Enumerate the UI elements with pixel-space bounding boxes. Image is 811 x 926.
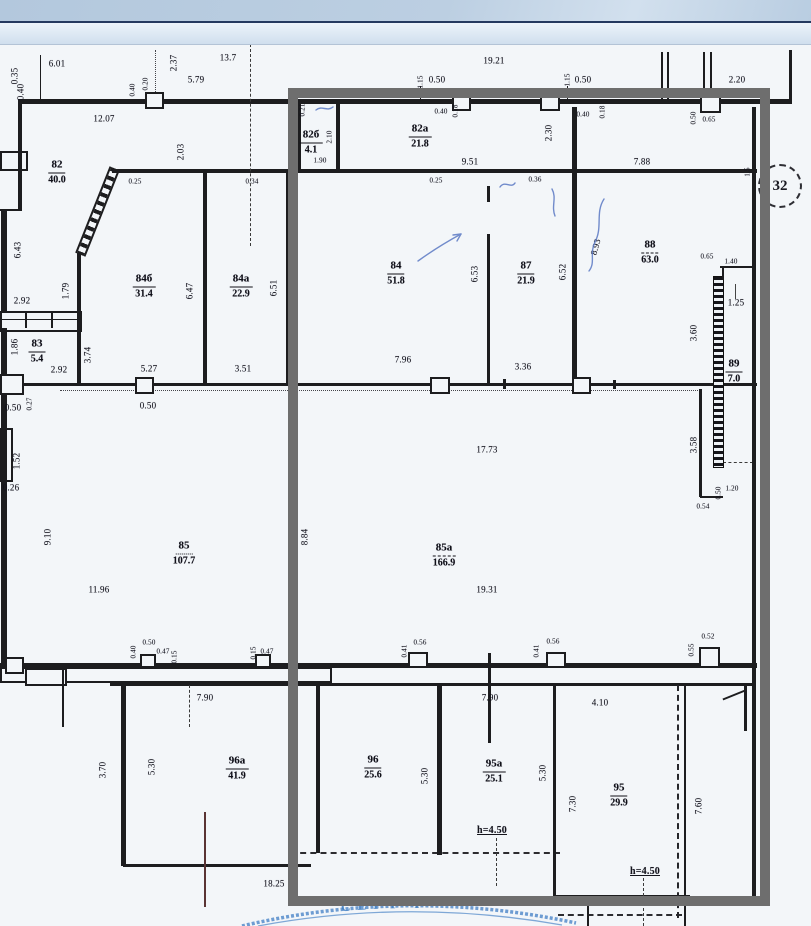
wall bbox=[123, 864, 311, 867]
wall-dashed bbox=[189, 685, 190, 727]
dim-label: 0.40 bbox=[130, 83, 137, 96]
dim-label: 0.40 bbox=[17, 84, 26, 101]
axis-line bbox=[250, 44, 251, 246]
dim-label: 0.47 bbox=[260, 649, 273, 656]
dim-label: 1.15 bbox=[418, 75, 425, 88]
room-label: 835.4 bbox=[29, 334, 46, 365]
dim-label: 18.25 bbox=[263, 880, 284, 889]
axis-line bbox=[789, 50, 792, 99]
dim-label: 9.10 bbox=[44, 529, 53, 546]
dim-label: 12.07 bbox=[93, 115, 114, 124]
dim-label: 0.50 bbox=[575, 76, 592, 85]
room-label: 84б31.4 bbox=[133, 269, 156, 300]
wall bbox=[203, 169, 207, 385]
dim-label: 13.7 bbox=[220, 54, 237, 63]
column bbox=[135, 377, 154, 394]
dim-label: 2.92 bbox=[51, 366, 68, 375]
wall bbox=[121, 685, 126, 866]
dim-label: 0.34 bbox=[245, 179, 258, 186]
fold-line bbox=[204, 812, 206, 907]
wall bbox=[77, 253, 81, 385]
dim-label: 5.30 bbox=[148, 759, 157, 776]
wall bbox=[1, 385, 7, 665]
dim-label: 0.20 bbox=[143, 77, 150, 90]
dim-label: 0.15 bbox=[172, 650, 179, 663]
window-mullion bbox=[25, 311, 27, 328]
column bbox=[5, 657, 24, 674]
wall-stub bbox=[0, 151, 28, 171]
dim-label: 11.96 bbox=[89, 586, 110, 595]
dim-label: 0.15 bbox=[251, 646, 258, 659]
column bbox=[145, 92, 164, 109]
dim-label: 19.21 bbox=[483, 57, 504, 66]
dim-label: 1.86 bbox=[11, 339, 20, 356]
dim-label: 6.47 bbox=[186, 283, 195, 300]
dim-label: 5.79 bbox=[188, 76, 205, 85]
window bbox=[0, 311, 82, 332]
dim-label: 0.47 bbox=[156, 649, 169, 656]
dim-label: 2.03 bbox=[177, 144, 186, 161]
window-titlebar bbox=[0, 0, 811, 23]
window-mullion bbox=[0, 319, 78, 320]
dim-label: 3.74 bbox=[84, 347, 93, 364]
dim-label: 1.52 bbox=[13, 453, 22, 470]
dim-label: 0.50 bbox=[429, 76, 446, 85]
dim-label: 3.51 bbox=[235, 365, 252, 374]
axis-line bbox=[155, 50, 156, 98]
dim-label: 1.79 bbox=[62, 283, 71, 300]
selection-rectangle[interactable] bbox=[288, 88, 770, 906]
dim-label: 2.92 bbox=[14, 297, 31, 306]
dim-label: 2.37 bbox=[170, 55, 179, 72]
dim-label: 7.90 bbox=[197, 694, 214, 703]
dim-label: 2.20 bbox=[729, 76, 746, 85]
wall bbox=[1, 209, 7, 313]
room-label: 85107.7 bbox=[173, 536, 196, 567]
dim-label: 3.70 bbox=[99, 762, 108, 779]
dim-label: 1.15 bbox=[565, 73, 572, 86]
dim-label: 0.35 bbox=[11, 68, 20, 85]
dim-label: 5.27 bbox=[141, 365, 158, 374]
dim-label: 6.43 bbox=[14, 242, 23, 259]
dim-label: 0.50 bbox=[142, 640, 155, 647]
dim-label: 0.25 bbox=[128, 179, 141, 186]
dim-label: 6.51 bbox=[270, 280, 279, 297]
dim-label: 0.26 bbox=[3, 484, 20, 493]
dim-label: 6.01 bbox=[49, 60, 66, 69]
room-label: 8240.0 bbox=[48, 155, 66, 186]
dim-label: 0.27 bbox=[27, 397, 34, 410]
column bbox=[0, 374, 24, 395]
dim-label: 0.50 bbox=[140, 402, 157, 411]
room-label: 96а41.9 bbox=[226, 751, 249, 782]
axis-line bbox=[40, 55, 41, 99]
wall-diagonal bbox=[75, 166, 120, 256]
window-toolbar bbox=[0, 23, 811, 45]
room-label: 84а22.9 bbox=[230, 269, 253, 300]
dim-label: 0.40 bbox=[131, 645, 138, 658]
window-notch bbox=[140, 654, 156, 668]
column bbox=[25, 668, 67, 686]
window-mullion bbox=[51, 311, 53, 328]
wall bbox=[18, 99, 22, 211]
wall bbox=[62, 667, 64, 727]
dim-label: 0.50 bbox=[5, 404, 22, 413]
